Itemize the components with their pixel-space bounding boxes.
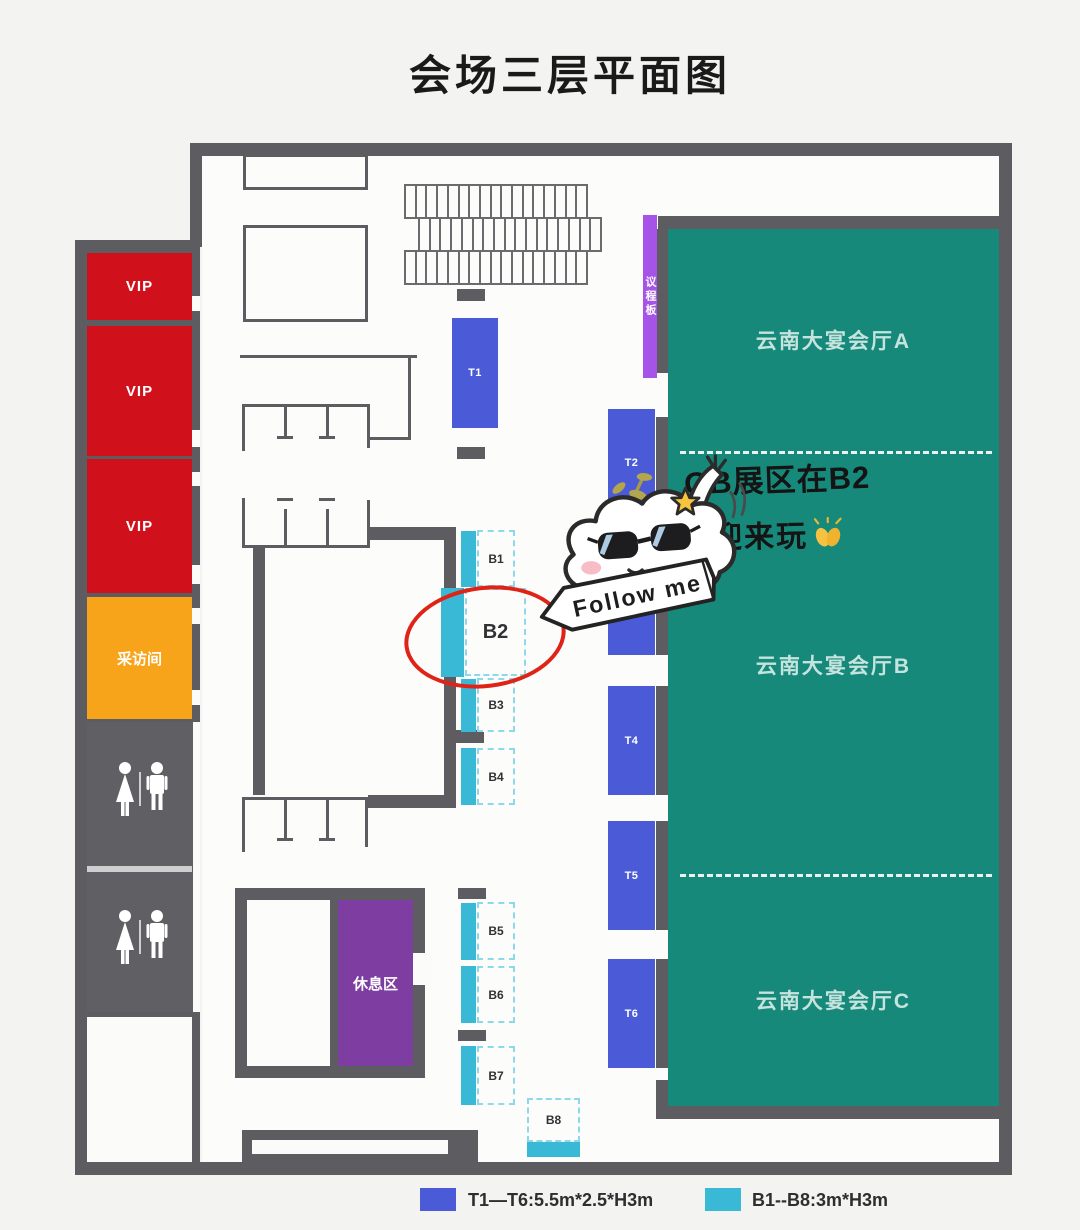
page-title: 会场三层平面图 [190, 42, 950, 103]
booth-t6: T6 [608, 959, 655, 1068]
booth-t5: T5 [608, 821, 655, 930]
agenda-board-label: 议程板 [642, 276, 658, 318]
floor-plan: 会场三层平面图 VIP VIP VIP 采访间 [0, 0, 1080, 1230]
vip-room-3: VIP [87, 459, 192, 593]
agenda-board: 议程板 [643, 215, 657, 378]
door-gap [413, 953, 432, 985]
stall-partition [326, 509, 329, 547]
podium [458, 1030, 486, 1041]
chair-cell [589, 217, 602, 252]
hall-c-label: 云南大宴会厅C [668, 985, 999, 1015]
booth-b5-bar [461, 903, 476, 960]
wall [75, 1162, 1012, 1175]
door-gap [192, 608, 200, 624]
booth-b1: B1 [477, 530, 515, 587]
booth-t6-label: T6 [625, 1008, 639, 1020]
empty-room [87, 1017, 192, 1162]
hall-divider [680, 874, 992, 877]
vip-room-2-label: VIP [126, 383, 153, 400]
door-gap [192, 430, 200, 447]
booth-b7: B7 [477, 1046, 515, 1105]
door-gap [192, 690, 200, 705]
door-gap [192, 296, 200, 311]
booth-t4-label: T4 [625, 735, 639, 747]
legend-swatch-b [705, 1188, 741, 1211]
clapping-hands-icon [812, 517, 845, 550]
booth-t4: T4 [608, 686, 655, 795]
wall [253, 546, 265, 795]
wall [656, 959, 668, 1068]
corridor [193, 722, 200, 1012]
door-gap [192, 472, 200, 486]
vip-room-3-label: VIP [126, 518, 153, 535]
booth-t1-label: T1 [468, 367, 482, 379]
vip-room-1-label: VIP [126, 278, 153, 295]
stall-partition [242, 797, 370, 800]
rest-area: 休息区 [338, 900, 413, 1066]
interview-room-label: 采访间 [117, 648, 162, 669]
wall [656, 686, 668, 795]
wall [656, 1080, 668, 1106]
booth-b3-label: B3 [488, 698, 503, 712]
partition-line [408, 355, 411, 440]
outlined-room [243, 225, 368, 322]
podium [457, 447, 485, 459]
stall-partition [326, 797, 329, 839]
inner-room [247, 900, 330, 1066]
booth-b5-label: B5 [488, 924, 503, 938]
stall-partition [284, 404, 287, 438]
booth-b4-label: B4 [488, 770, 503, 784]
booth-b6-bar [461, 966, 476, 1023]
booth-t1: T1 [452, 318, 498, 428]
stall-partition [277, 498, 293, 501]
stall-partition [277, 436, 293, 439]
rest-area-label: 休息区 [353, 973, 398, 994]
hall-a-label: 云南大宴会厅A [668, 325, 999, 355]
stall-partition [277, 838, 293, 841]
partition-line [240, 355, 417, 358]
wall [235, 888, 247, 1078]
wall [330, 900, 338, 1066]
legend-label-b: B1--B8:3m*H3m [752, 1190, 888, 1211]
booth-b6: B6 [477, 966, 515, 1023]
wall [999, 143, 1012, 1175]
stall-partition [242, 404, 370, 407]
podium [458, 888, 486, 899]
partition-line [368, 437, 411, 440]
stall-partition [319, 838, 335, 841]
stall-partition [319, 436, 335, 439]
outlined-room [243, 154, 368, 190]
stall-partition [284, 509, 287, 547]
booth-b8-label: B8 [546, 1113, 561, 1127]
restroom-icon [103, 758, 177, 830]
legend-swatch-t [420, 1188, 456, 1211]
chair-cell [575, 184, 588, 219]
stall-partition [326, 404, 329, 438]
booth-b7-bar [461, 1046, 476, 1105]
booth-b4-bar [461, 748, 476, 805]
interview-room: 采访间 [87, 597, 192, 719]
wall [235, 888, 425, 900]
wall [656, 1106, 999, 1119]
booth-b8-bar [527, 1142, 580, 1157]
chair-cell [575, 250, 588, 285]
vip-room-2: VIP [87, 326, 192, 456]
wall [658, 216, 999, 229]
podium [457, 289, 485, 301]
booth-b7-label: B7 [488, 1069, 503, 1083]
restroom-icon [103, 906, 177, 978]
door-gap [192, 565, 200, 584]
wall [190, 143, 202, 247]
vip-room-1: VIP [87, 253, 192, 320]
stall-partition [367, 404, 370, 448]
stall-partition [242, 797, 245, 852]
stall-partition [242, 498, 245, 548]
booth-b6-label: B6 [488, 988, 503, 1002]
booth-b4: B4 [477, 748, 515, 805]
booth-b1-label: B1 [488, 552, 503, 566]
booth-b1-bar [461, 531, 476, 587]
wall [235, 1066, 425, 1078]
booth-b5: B5 [477, 902, 515, 960]
wall-opening [252, 1140, 448, 1154]
wall [656, 821, 668, 930]
hall-b-label: 云南大宴会厅B [668, 650, 999, 680]
booth-b8: B8 [527, 1098, 580, 1142]
stall-partition [284, 797, 287, 839]
stall-partition [242, 404, 245, 451]
legend-label-t: T1—T6:5.5m*2.5*H3m [468, 1190, 653, 1211]
booth-t5-label: T5 [625, 870, 639, 882]
stall-partition [319, 498, 335, 501]
wall [368, 527, 456, 540]
wall [368, 795, 456, 808]
banquet-seating-grid [404, 184, 604, 285]
